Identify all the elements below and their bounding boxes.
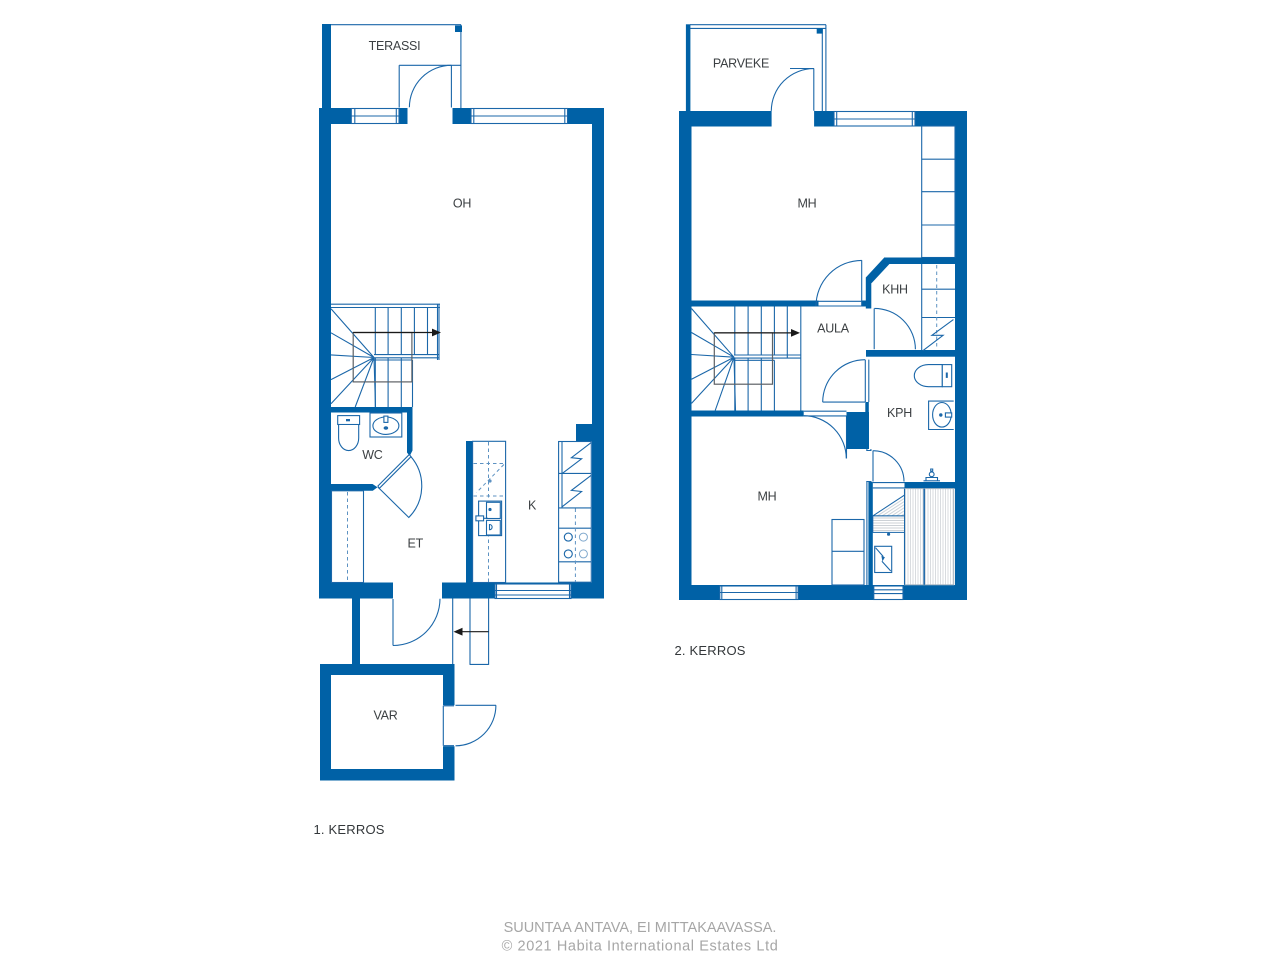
svg-text:© 2021 Habita International Es: © 2021 Habita International Estates Ltd [502, 939, 779, 955]
svg-text:TERASSI: TERASSI [369, 39, 421, 53]
svg-text:2. KERROS: 2. KERROS [675, 643, 746, 658]
svg-text:MH: MH [758, 489, 777, 503]
svg-text:KHH: KHH [882, 282, 908, 296]
svg-text:KPH: KPH [887, 406, 912, 420]
svg-text:1. KERROS: 1. KERROS [314, 822, 385, 837]
svg-text:WC: WC [362, 448, 383, 462]
svg-text:AULA: AULA [817, 321, 850, 335]
svg-text:ET: ET [408, 536, 424, 550]
svg-text:MH: MH [798, 197, 817, 211]
svg-text:PARVEKE: PARVEKE [713, 57, 769, 71]
svg-text:SUUNTAA ANTAVA, EI MITTAKAAVAS: SUUNTAA ANTAVA, EI MITTAKAAVASSA. [504, 920, 777, 936]
svg-text:VAR: VAR [373, 708, 397, 722]
svg-text:K: K [528, 498, 537, 512]
svg-text:OH: OH [453, 197, 471, 211]
